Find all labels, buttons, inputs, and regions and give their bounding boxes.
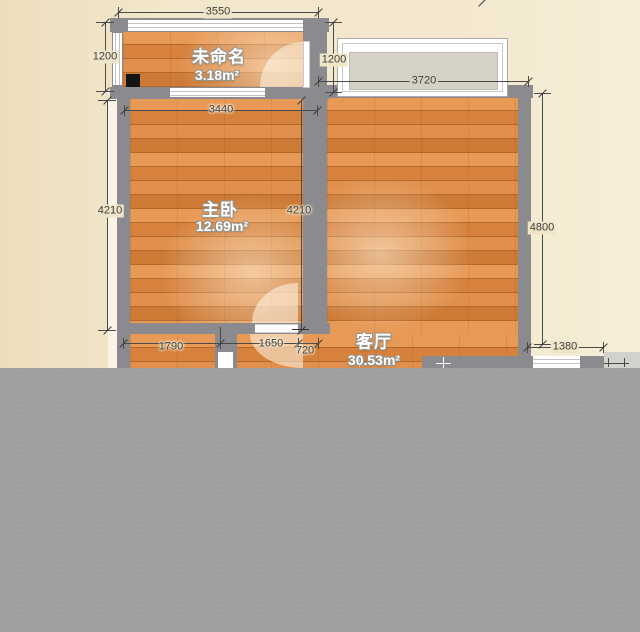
dim-label-bottom-right-width: 1380	[551, 341, 579, 354]
dim-label-balcony-height: 1200	[320, 54, 348, 67]
dim-tick	[624, 358, 625, 367]
floorplan-canvas: 3550 1200 3440 4210 4210 1200 3720 4800	[0, 0, 640, 632]
room-label-living-room: 客厅	[356, 328, 392, 353]
dim-tick	[608, 358, 609, 367]
window-top	[128, 20, 303, 31]
censor-overlay	[0, 368, 640, 632]
window-mid	[170, 88, 265, 97]
dim-label-bottom-width-2: 1650	[259, 338, 283, 351]
dim-label-living-height: 4800	[528, 222, 556, 235]
dim-label-bottom-width-1: 1790	[159, 341, 183, 354]
dim-tick	[478, 0, 486, 7]
window-bottom-right	[533, 356, 580, 368]
room-area-living-room: 30.53m²	[348, 352, 400, 368]
room-label-unnamed: 未命名	[192, 43, 246, 68]
wall-living-bottom	[422, 356, 533, 368]
room-area-master-bedroom: 12.69m²	[196, 218, 248, 234]
wall-bottom-right	[580, 356, 604, 368]
door-gap-hall	[218, 352, 233, 368]
dim-extension	[220, 327, 221, 345]
dim-line	[542, 93, 543, 345]
dim-label-balcony-width: 3720	[410, 75, 438, 88]
dim-label-bedroom-width: 3440	[209, 104, 233, 117]
room-area-unnamed: 3.18m²	[195, 67, 239, 83]
wall-bottom-right-light	[604, 352, 640, 368]
flue-marker	[126, 74, 140, 87]
dim-label-bottom-width-3: 720	[296, 345, 314, 358]
dim-label-top-width: 3550	[204, 6, 232, 19]
room-label-master-bedroom: 主卧	[202, 196, 238, 221]
dim-label-bedroom-height-right: 4210	[287, 205, 311, 218]
dim-extension	[292, 329, 309, 330]
balcony-bay-window	[337, 38, 508, 97]
dim-label-upper-left-height: 1200	[91, 51, 119, 64]
door-leaf-unnamed	[303, 41, 310, 88]
dim-tick-white	[443, 357, 444, 368]
dim-label-bedroom-height-left: 4210	[96, 205, 124, 218]
